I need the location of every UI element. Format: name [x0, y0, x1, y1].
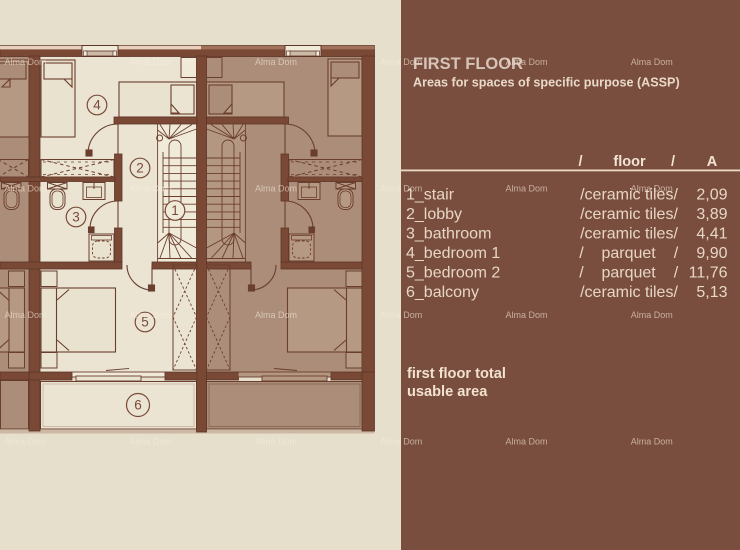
svg-text:4_bedroom 1: 4_bedroom 1	[406, 245, 500, 262]
svg-text:Alma Dom: Alma Dom	[380, 437, 422, 447]
svg-text:/: /	[578, 154, 582, 170]
svg-text:parquet: parquet	[601, 265, 656, 282]
svg-text:/: /	[674, 265, 679, 282]
svg-text:A: A	[707, 154, 718, 170]
svg-text:9,90: 9,90	[696, 245, 727, 262]
svg-text:/ceramic tiles/: /ceramic tiles/	[580, 226, 678, 243]
svg-text:Alma Dom: Alma Dom	[631, 437, 673, 447]
svg-text:3_bathroom: 3_bathroom	[406, 226, 491, 243]
svg-text:5_bedroom 2: 5_bedroom 2	[406, 265, 500, 282]
svg-text:Alma Dom: Alma Dom	[380, 57, 422, 67]
svg-text:floor: floor	[613, 154, 646, 170]
svg-text:Areas for spaces of specific p: Areas for spaces of specific purpose (AS…	[413, 76, 680, 90]
svg-text:5,13: 5,13	[696, 284, 727, 301]
svg-text:Alma Dom: Alma Dom	[255, 310, 297, 320]
svg-text:2_lobby: 2_lobby	[406, 206, 462, 223]
svg-text:Alma Dom: Alma Dom	[506, 184, 548, 194]
svg-text:4: 4	[93, 98, 101, 113]
svg-text:3: 3	[72, 210, 80, 225]
svg-text:/: /	[674, 245, 679, 262]
svg-text:Alma Dom: Alma Dom	[506, 437, 548, 447]
svg-text:Alma Dom: Alma Dom	[631, 184, 673, 194]
svg-text:6: 6	[134, 398, 142, 413]
svg-text:Alma Dom: Alma Dom	[380, 310, 422, 320]
svg-text:/: /	[579, 265, 584, 282]
svg-text:Alma Dom: Alma Dom	[130, 57, 172, 67]
svg-text:usable area: usable area	[407, 384, 488, 400]
svg-text:/: /	[579, 245, 584, 262]
svg-text:Alma Dom: Alma Dom	[380, 184, 422, 194]
svg-text:Alma Dom: Alma Dom	[5, 57, 47, 67]
svg-text:2,09: 2,09	[696, 187, 727, 204]
svg-text:first floor total: first floor total	[407, 366, 506, 382]
svg-text:/ceramic tiles/: /ceramic tiles/	[580, 206, 678, 223]
svg-text:Alma Dom: Alma Dom	[130, 310, 172, 320]
svg-text:Alma Dom: Alma Dom	[631, 57, 673, 67]
svg-text:Alma Dom: Alma Dom	[255, 184, 297, 194]
svg-text:Alma Dom: Alma Dom	[5, 184, 47, 194]
svg-text:Alma Dom: Alma Dom	[255, 57, 297, 67]
svg-text:/ceramic tiles/: /ceramic tiles/	[580, 284, 678, 301]
svg-text:Alma Dom: Alma Dom	[130, 437, 172, 447]
svg-text:parquet: parquet	[601, 245, 656, 262]
svg-text:11,76: 11,76	[689, 265, 728, 282]
svg-text:Alma Dom: Alma Dom	[506, 310, 548, 320]
svg-text:Alma Dom: Alma Dom	[506, 57, 548, 67]
svg-text:Alma Dom: Alma Dom	[5, 437, 47, 447]
svg-text:6_balcony: 6_balcony	[406, 284, 479, 301]
svg-text:4,41: 4,41	[696, 226, 727, 243]
svg-text:Alma Dom: Alma Dom	[255, 437, 297, 447]
svg-text:Alma Dom: Alma Dom	[631, 310, 673, 320]
svg-text:1: 1	[171, 203, 179, 218]
svg-text:Alma Dom: Alma Dom	[5, 310, 47, 320]
svg-text:3,89: 3,89	[696, 206, 727, 223]
svg-text:Alma Dom: Alma Dom	[130, 184, 172, 194]
svg-text:/: /	[671, 154, 675, 170]
svg-text:2: 2	[136, 161, 144, 176]
